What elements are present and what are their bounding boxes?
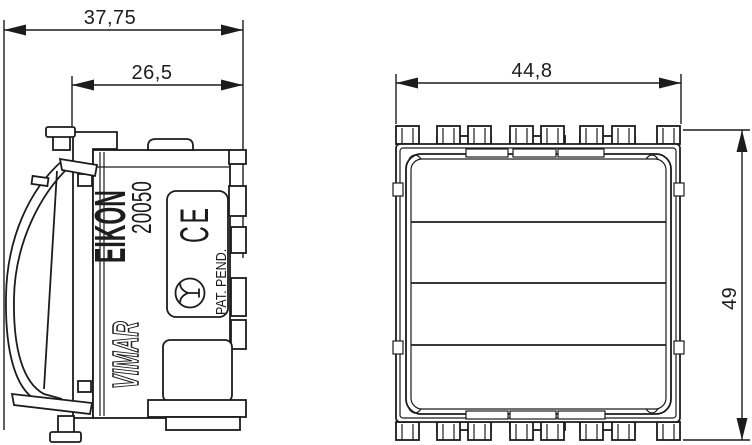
technical-drawing: 37,75 26,5 — [0, 0, 752, 445]
rear-clip — [229, 186, 246, 216]
mounting-tab — [468, 422, 491, 440]
dim-width-value: 44,8 — [512, 60, 553, 82]
rear-clip — [229, 150, 246, 164]
model-number-label: 20050 — [128, 181, 158, 234]
body-top-hump — [148, 139, 193, 150]
dimension-recess-depth: 26,5 — [72, 62, 243, 126]
dimension-width: 44,8 — [396, 60, 681, 124]
rear-clip — [231, 227, 246, 253]
mounting-tab — [437, 422, 460, 440]
rocker-inner-curve — [14, 166, 70, 399]
mounting-tab — [541, 422, 564, 440]
latch-slot — [558, 149, 604, 157]
mounting-tab — [510, 126, 533, 144]
side-latch — [393, 183, 403, 196]
arrowhead-left-icon — [72, 80, 94, 91]
rocker-face-outer — [406, 154, 671, 414]
mounting-tab — [541, 126, 564, 144]
latch-slot — [558, 411, 605, 419]
technical-drawing-page: 37,75 26,5 — [0, 0, 752, 445]
arrowhead-down-icon — [737, 418, 748, 440]
arrowhead-right-icon — [659, 78, 681, 89]
dim-overall-depth-value: 37,75 — [84, 7, 137, 29]
side-view: 37,75 26,5 — [4, 7, 246, 442]
mounting-tab — [580, 126, 603, 144]
arrowhead-up-icon — [737, 130, 748, 152]
side-latch — [674, 341, 684, 354]
arrowhead-left-icon — [4, 25, 26, 36]
mounting-tab — [396, 422, 419, 440]
dim-height-value: 49 — [719, 287, 741, 310]
dim-recess-depth-value: 26,5 — [132, 62, 173, 84]
side-view-part — [6, 127, 246, 442]
mounting-tab — [612, 422, 635, 440]
side-latch — [393, 341, 403, 354]
mounting-tab — [612, 126, 635, 144]
patent-pending-label: PAT. PEND. — [213, 249, 229, 315]
mounting-tab — [396, 126, 419, 144]
front-view-part — [393, 126, 684, 440]
latch-slot — [466, 149, 508, 157]
latch-slot — [510, 411, 556, 419]
latch-tab — [78, 381, 91, 392]
vimar-logo-label: VIMAR — [106, 321, 146, 389]
top-clip-stem — [53, 136, 70, 150]
ce-mark-label: CE — [171, 205, 216, 243]
rear-clip — [231, 320, 246, 349]
bottom-clip-cap — [50, 432, 81, 442]
dimension-height: 49 — [683, 130, 750, 440]
latch-slot — [466, 411, 508, 419]
rear-clip — [231, 278, 246, 316]
rocker-inner-face — [44, 171, 57, 389]
arrowhead-right-icon — [221, 25, 243, 36]
mounting-tab — [437, 126, 460, 144]
rocker-hook — [32, 176, 49, 186]
mounting-tab — [468, 126, 491, 144]
arrowhead-left-icon — [396, 78, 418, 89]
latch-slot — [513, 149, 556, 157]
mounting-tab — [580, 422, 603, 440]
side-latch — [674, 183, 684, 196]
bottom-step — [148, 400, 246, 417]
mounting-tab — [657, 126, 680, 144]
mounting-tab — [510, 422, 533, 440]
top-clip-cap — [46, 127, 75, 137]
terminal-block — [163, 340, 232, 402]
arrowhead-right-icon — [221, 80, 243, 91]
mounting-tab — [657, 422, 680, 440]
front-view: 44,8 49 — [393, 60, 750, 440]
bottom-step — [166, 417, 240, 430]
